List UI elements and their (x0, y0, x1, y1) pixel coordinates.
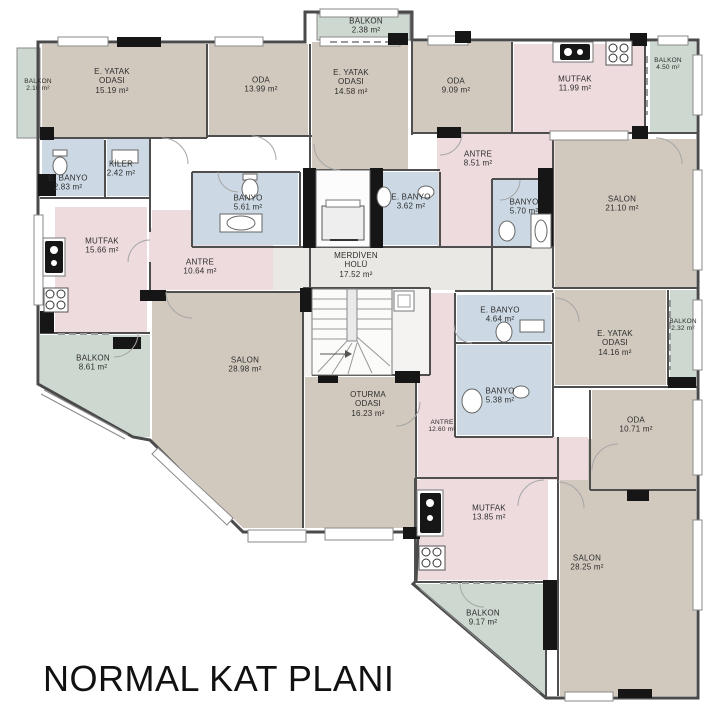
room-label-oda-2: ODA9.09 m² (442, 77, 471, 96)
room-label-kiler: KİLER2.42 m² (107, 160, 136, 179)
shower-icon (531, 214, 551, 248)
room-label-salon-2: SALON28.98 m² (228, 356, 261, 375)
room-fill-salon-2 (152, 292, 303, 528)
room-fill-balkon-left (40, 335, 150, 437)
toilet-icon (496, 322, 512, 342)
room-label-e-yatak-odasi-1: E. YATAK ODASI15.19 m² (85, 67, 139, 95)
room-label-balkon-left: BALKON8.61 m² (76, 354, 110, 373)
room-label-e-banyo-3: E. BANYO4.64 m² (480, 306, 519, 325)
room-fill-corridor-strip (152, 210, 192, 230)
stove-icon (44, 288, 68, 312)
room-label-mutfak-2: MUTFAK15.66 m² (85, 237, 119, 256)
basin-icon (513, 386, 529, 398)
room-fill-e-yatak-odasi-2 (312, 42, 408, 170)
room-label-banyo-1: BANYO5.61 m² (233, 194, 262, 213)
room-label-oturma-odasi: OTURMA ODASI16.23 m² (345, 390, 391, 418)
plan-title: NORMAL KAT PLANI (43, 658, 394, 700)
toilet-icon (499, 221, 515, 241)
room-fill-balkon-right (670, 290, 696, 383)
room-label-antre-2: ANTRE10.64 m² (183, 258, 216, 277)
basin-icon (520, 320, 544, 332)
room-label-oda-1: ODA13.99 m² (244, 76, 277, 95)
room-fill-mutfak-2 (55, 207, 147, 333)
room-fill-salon-1 (555, 139, 696, 288)
stove-icon (606, 41, 632, 65)
toilet-icon (377, 187, 391, 207)
room-label-antre-1: ANTRE8.51 m² (464, 150, 493, 169)
vanity-icon (220, 214, 262, 232)
room-label-balkon-bottom: BALKON9.17 m² (466, 609, 500, 628)
toilet-icon (53, 150, 67, 175)
elevator-icon (316, 170, 370, 247)
room-label-e-banyo-1: E. BANYO2.83 m² (48, 174, 87, 193)
room-fill-antre-3b (420, 437, 588, 480)
toilet-icon (462, 389, 482, 413)
room-label-e-banyo-2: E. BANYO3.62 m² (391, 193, 430, 212)
room-label-salon-1: SALON21.10 m² (605, 195, 638, 214)
room-label-e-yatak-odasi-2: E. YATAK ODASI14.58 m² (324, 68, 378, 96)
room-label-merdiven-holu: MERDİVEN HOLÜ17.52 m² (324, 251, 388, 279)
room-label-antre-3: ANTRE12.60 m² (428, 419, 455, 433)
floor-plan-canvas: BALKON2.10 m² E. YATAK ODASI15.19 m² ODA… (0, 0, 718, 720)
room-label-balkon-top-left: BALKON2.10 m² (24, 78, 52, 92)
hall-fill (273, 247, 553, 290)
room-label-oda-3: ODA10.71 m² (619, 416, 652, 435)
room-label-mutfak-3: MUTFAK13.85 m² (472, 504, 506, 523)
room-label-banyo-3: BANYO5.38 m² (485, 387, 514, 406)
room-label-balkon-top-center: BALKON2.38 m² (349, 17, 383, 36)
stove-icon (419, 546, 445, 570)
room-label-salon-3: SALON28.25 m² (570, 554, 603, 573)
room-fill-balkon-top-right (650, 42, 696, 132)
room-label-e-yatak-odasi-3: E. YATAK ODASI14.16 m² (588, 329, 642, 357)
room-label-balkon-top-right: BALKON4.50 m² (654, 57, 682, 71)
room-label-banyo-2: BANYO5.70 m² (509, 198, 538, 217)
room-label-mutfak-1: MUTFAK11.99 m² (558, 75, 592, 94)
room-label-balkon-right: BALKON2.32 m² (669, 318, 697, 332)
sink-icon (43, 238, 65, 276)
sink-icon (417, 490, 443, 536)
sink-icon (553, 42, 593, 62)
